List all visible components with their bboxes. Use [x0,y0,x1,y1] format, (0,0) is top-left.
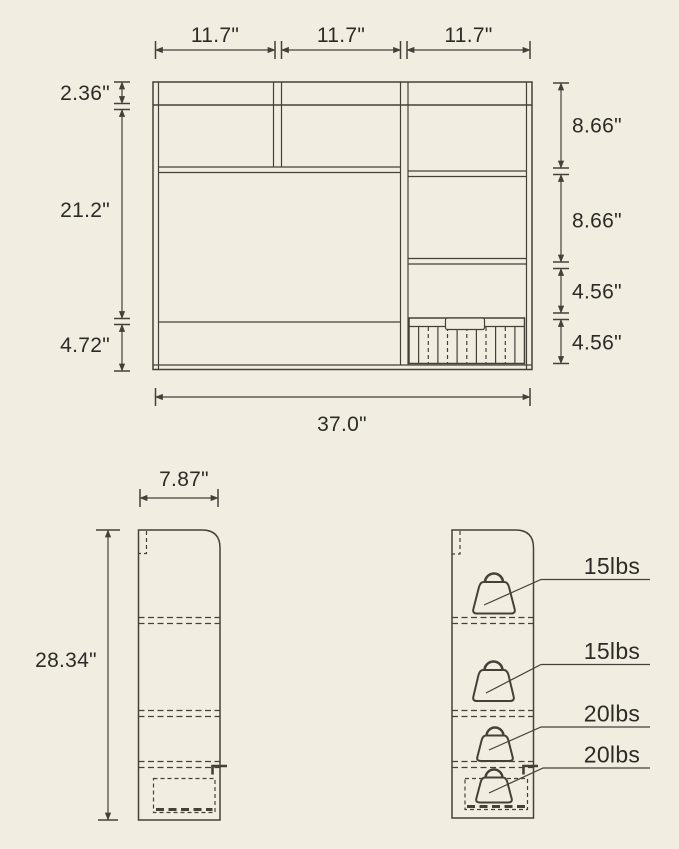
dim-left-heights: 2.36" 21.2" 4.72" [60,82,130,371]
hidden-back-panel-line [139,531,147,554]
dim-label-right-3: 4.56" [572,281,622,304]
side-view-left: 7.87" 28.34" [35,468,227,820]
front-view [153,82,532,370]
basket-handle-icon [446,318,485,330]
leader-line [489,768,650,793]
dim-label-height-top: 2.36" [60,82,110,105]
product-dimension-diagram: 11.7" 11.7" 11.7" 2.36" 21.2" 4.72" 8.66… [0,0,679,849]
weight-callout-1: 15lbs [473,553,650,614]
weight-limit-label-2: 15lbs [584,638,640,664]
dim-top-widths: 11.7" 11.7" 11.7" [156,24,531,59]
dim-label-right-1: 8.66" [572,115,622,138]
weight-icon [476,770,512,803]
dim-label-width-1: 11.7" [191,24,239,47]
dim-label-height-bottom: 4.72" [60,334,110,357]
dim-label-right-4: 4.56" [572,332,622,355]
basket-front-icon [409,318,525,364]
dim-depth: 7.87" [140,468,218,507]
dim-total-width: 37.0" [156,388,531,436]
hidden-back-panel-line [453,531,461,554]
dim-label-height: 28.34" [35,649,97,672]
dim-label-width-3: 11.7" [444,24,492,47]
weight-icon [477,728,513,762]
dim-label-width-2: 11.7" [317,24,365,47]
dim-right-heights: 8.66" 8.66" 4.56" 4.56" [553,83,622,364]
dim-height: 28.34" [35,530,120,820]
weight-limit-label-4: 20lbs [584,742,640,768]
dim-label-height-middle: 21.2" [60,199,110,222]
basket-side-hidden-icon [154,779,216,813]
side-view-right: 15lbs 15lbs 20lbs 20lbs [452,530,650,818]
weight-limit-label-3: 20lbs [584,701,640,727]
dimension-diagram-page: 11.7" 11.7" 11.7" 2.36" 21.2" 4.72" 8.66… [0,0,679,849]
dim-label-total-width: 37.0" [317,413,367,436]
weight-limit-label-1: 15lbs [584,553,640,579]
dim-label-depth: 7.87" [159,468,209,491]
dim-label-right-2: 8.66" [572,210,622,233]
weight-callout-2: 15lbs [473,638,650,701]
